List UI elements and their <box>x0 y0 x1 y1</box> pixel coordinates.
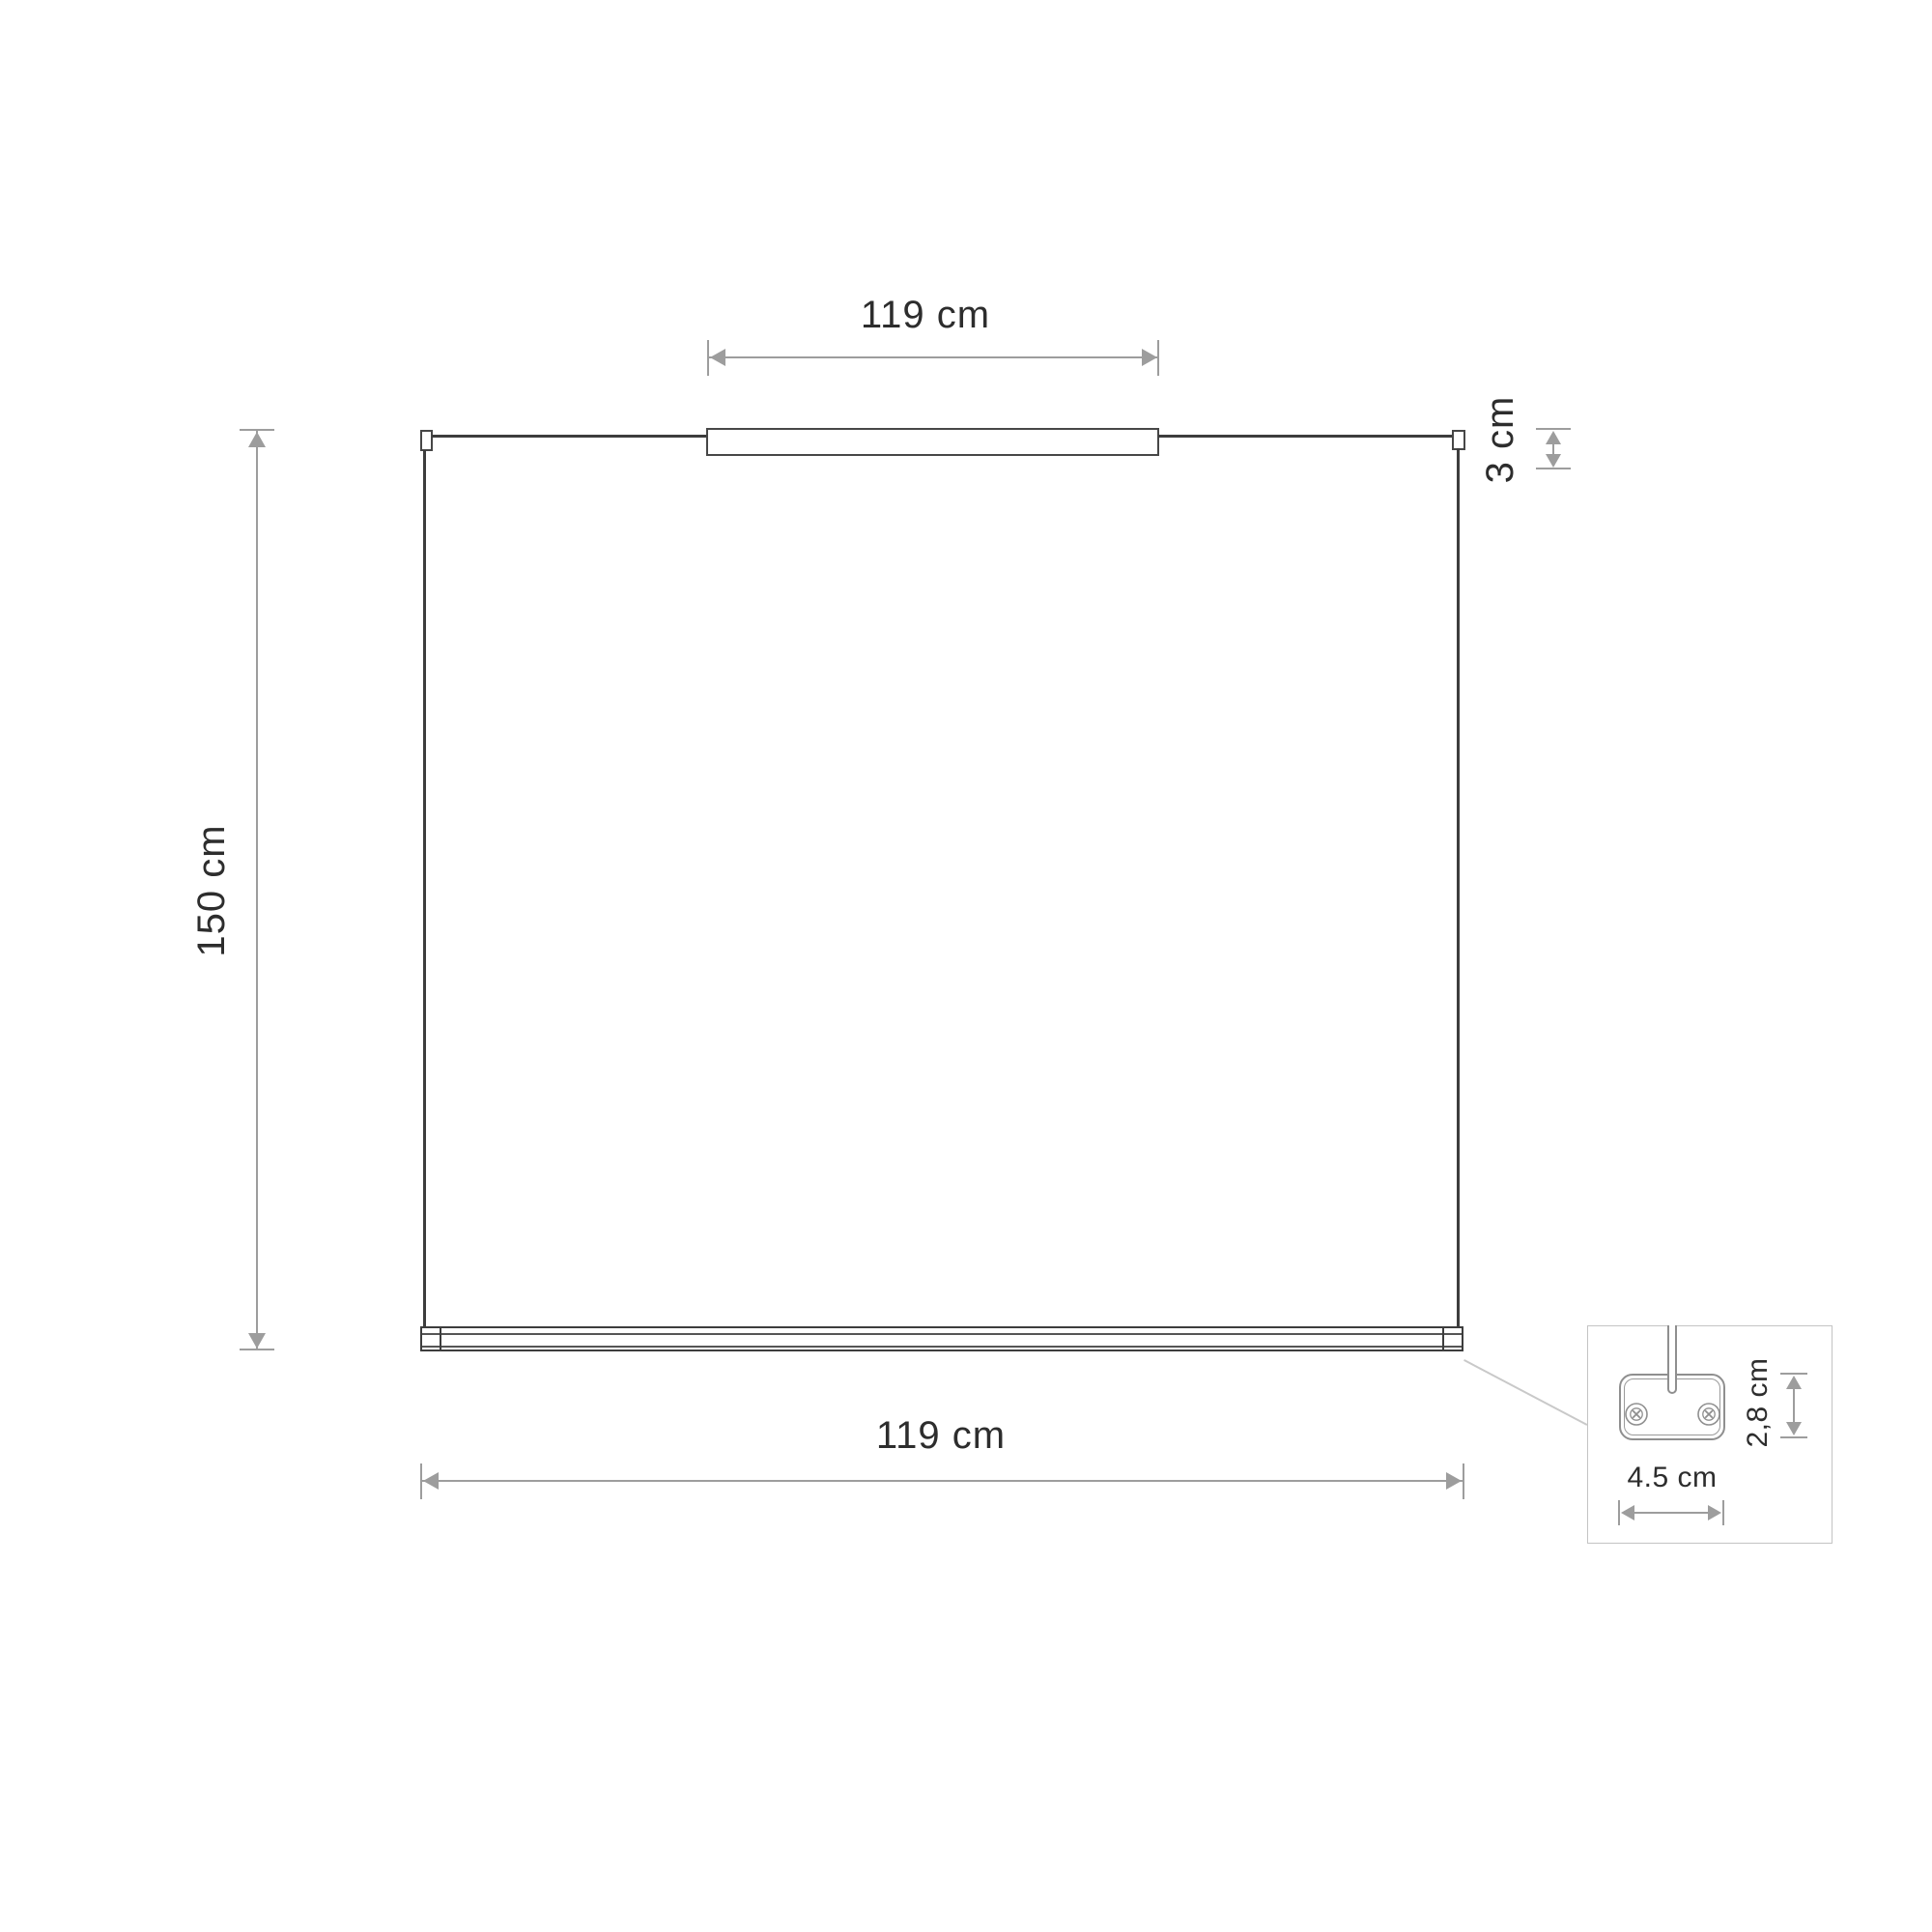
arrowhead-down-icon <box>1786 1422 1802 1435</box>
dimension-diagram: 119 cm 3 cm 150 cm <box>0 0 1932 1932</box>
housing-height-tick-top <box>1536 428 1571 430</box>
arrowhead-right-icon <box>1446 1472 1462 1490</box>
arrowhead-left-icon <box>710 349 725 366</box>
arrowhead-right-icon <box>1708 1505 1721 1520</box>
top-width-tick-right <box>1157 340 1159 376</box>
ceiling-rod-left <box>432 435 707 438</box>
arrowhead-up-icon <box>1786 1376 1802 1389</box>
bracket-height-tick-top <box>1780 1373 1807 1375</box>
arrowhead-left-icon <box>1621 1505 1634 1520</box>
top-width-dimension-line <box>709 356 1158 358</box>
suspension-height-tick-bottom <box>240 1349 274 1350</box>
bracket-width-tick-right <box>1722 1500 1724 1525</box>
bottom-width-dimension-line <box>422 1480 1463 1482</box>
bottom-width-tick-left <box>420 1463 422 1499</box>
suspension-height-dimension-line <box>256 431 258 1350</box>
bracket-height-dimension-line <box>1793 1385 1795 1426</box>
suspension-height-label: 150 cm <box>192 824 231 956</box>
bracket-height-tick-bottom <box>1780 1436 1807 1438</box>
ceiling-housing-bar <box>706 428 1159 456</box>
detail-leader-line <box>1463 1359 1587 1425</box>
led-bar-endcap-divider-right <box>1442 1328 1444 1350</box>
suspension-cable-right <box>1457 448 1460 1327</box>
led-bar-inner-line-top <box>422 1333 1462 1335</box>
led-bar-endcap-divider-left <box>440 1328 441 1350</box>
suspension-cable-left <box>423 450 426 1327</box>
arrowhead-left-icon <box>423 1472 439 1490</box>
ceiling-endcap-left <box>420 430 433 451</box>
housing-height-label: 3 cm <box>1481 396 1520 484</box>
led-bar-body <box>420 1326 1463 1351</box>
arrowhead-down-icon <box>248 1333 266 1349</box>
bottom-width-label: 119 cm <box>876 1416 1006 1455</box>
arrowhead-right-icon <box>1142 349 1157 366</box>
screw-icon <box>1696 1402 1721 1427</box>
ceiling-rod-right <box>1158 435 1454 438</box>
bracket-height-label: 2,8 cm <box>1744 1357 1773 1447</box>
led-bar-inner-line-bottom <box>422 1346 1462 1348</box>
top-width-label: 119 cm <box>861 296 990 334</box>
arrowhead-up-icon <box>1546 431 1561 444</box>
arrowhead-up-icon <box>248 432 266 447</box>
bracket-width-tick-left <box>1618 1500 1620 1525</box>
arrowhead-down-icon <box>1546 454 1561 468</box>
suspension-height-tick-top <box>240 429 274 431</box>
detail-cable <box>1667 1325 1677 1394</box>
bracket-width-label: 4.5 cm <box>1627 1463 1717 1492</box>
top-width-tick-left <box>707 340 709 376</box>
bracket-width-dimension-line <box>1633 1512 1710 1514</box>
screw-icon <box>1624 1402 1649 1427</box>
bottom-width-tick-right <box>1463 1463 1464 1499</box>
housing-height-tick-bottom <box>1536 468 1571 469</box>
ceiling-endcap-right <box>1452 430 1465 450</box>
